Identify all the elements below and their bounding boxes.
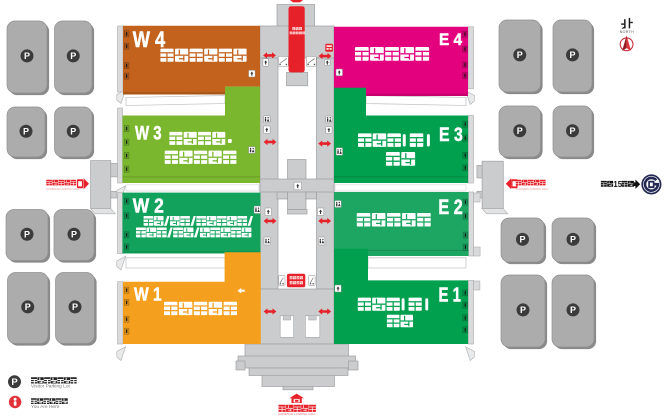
svg-text:P: P xyxy=(71,229,77,239)
svg-text:AUDIENCE LANDING HALL: AUDIENCE LANDING HALL xyxy=(516,187,549,191)
svg-text:P: P xyxy=(25,302,31,312)
svg-text:W 4: W 4 xyxy=(133,27,166,52)
svg-text:P: P xyxy=(570,235,576,245)
svg-text:P: P xyxy=(70,126,76,136)
svg-text:P: P xyxy=(24,229,30,239)
svg-text:E 2: E 2 xyxy=(438,195,462,219)
svg-text:P: P xyxy=(24,51,30,61)
svg-text:P: P xyxy=(72,302,78,312)
svg-text:AUDIENCE LANDING HALL: AUDIENCE LANDING HALL xyxy=(46,187,79,191)
svg-text:You Are Here: You Are Here xyxy=(31,404,60,410)
svg-text:P: P xyxy=(520,305,526,315)
svg-text:AUDIENCE LANDING HALL: AUDIENCE LANDING HALL xyxy=(278,412,316,416)
svg-text:P: P xyxy=(519,235,525,245)
svg-text:W 2: W 2 xyxy=(133,196,164,218)
svg-text:15: 15 xyxy=(613,180,622,189)
svg-text:P: P xyxy=(569,50,575,60)
svg-text:Visitor Parking Lot: Visitor Parking Lot xyxy=(31,384,71,390)
svg-text:E 1: E 1 xyxy=(439,285,461,307)
svg-text:P: P xyxy=(70,51,76,61)
svg-text:P: P xyxy=(517,126,523,136)
svg-text:P: P xyxy=(570,305,576,315)
svg-text:P: P xyxy=(11,377,18,388)
svg-text:E 4: E 4 xyxy=(439,30,463,49)
svg-text:P: P xyxy=(569,126,575,136)
svg-text:P: P xyxy=(517,50,523,60)
svg-text:W 1: W 1 xyxy=(134,285,162,306)
svg-text:E 3: E 3 xyxy=(439,124,463,146)
svg-text:W 3: W 3 xyxy=(135,123,162,145)
svg-text:NORTH: NORTH xyxy=(620,30,634,34)
svg-text:P: P xyxy=(23,126,29,136)
